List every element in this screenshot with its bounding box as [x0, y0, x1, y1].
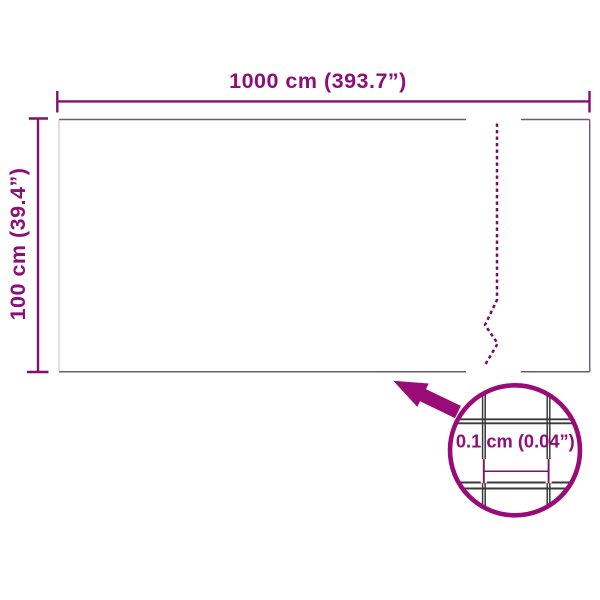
svg-text:1000 cm (393.7”): 1000 cm (393.7”) — [229, 69, 407, 93]
svg-text:0.1 cm (0.04”): 0.1 cm (0.04”) — [456, 431, 575, 452]
svg-text:100 cm (39.4”): 100 cm (39.4”) — [6, 168, 30, 321]
